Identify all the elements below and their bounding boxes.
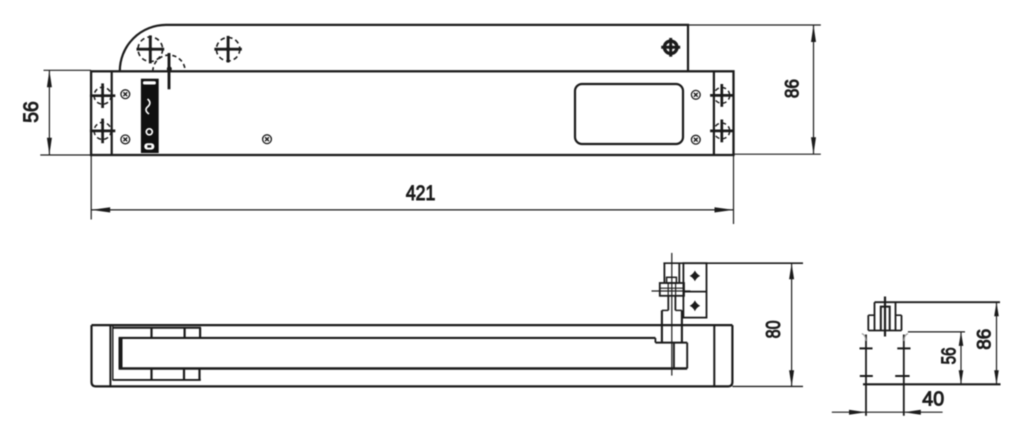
svg-text:80: 80 xyxy=(762,320,785,338)
svg-text:40: 40 xyxy=(922,387,944,410)
svg-text:86: 86 xyxy=(974,329,996,350)
svg-text:86: 86 xyxy=(782,79,803,98)
svg-text:56: 56 xyxy=(939,347,961,364)
svg-text:421: 421 xyxy=(406,182,436,205)
svg-text:56: 56 xyxy=(20,101,43,123)
